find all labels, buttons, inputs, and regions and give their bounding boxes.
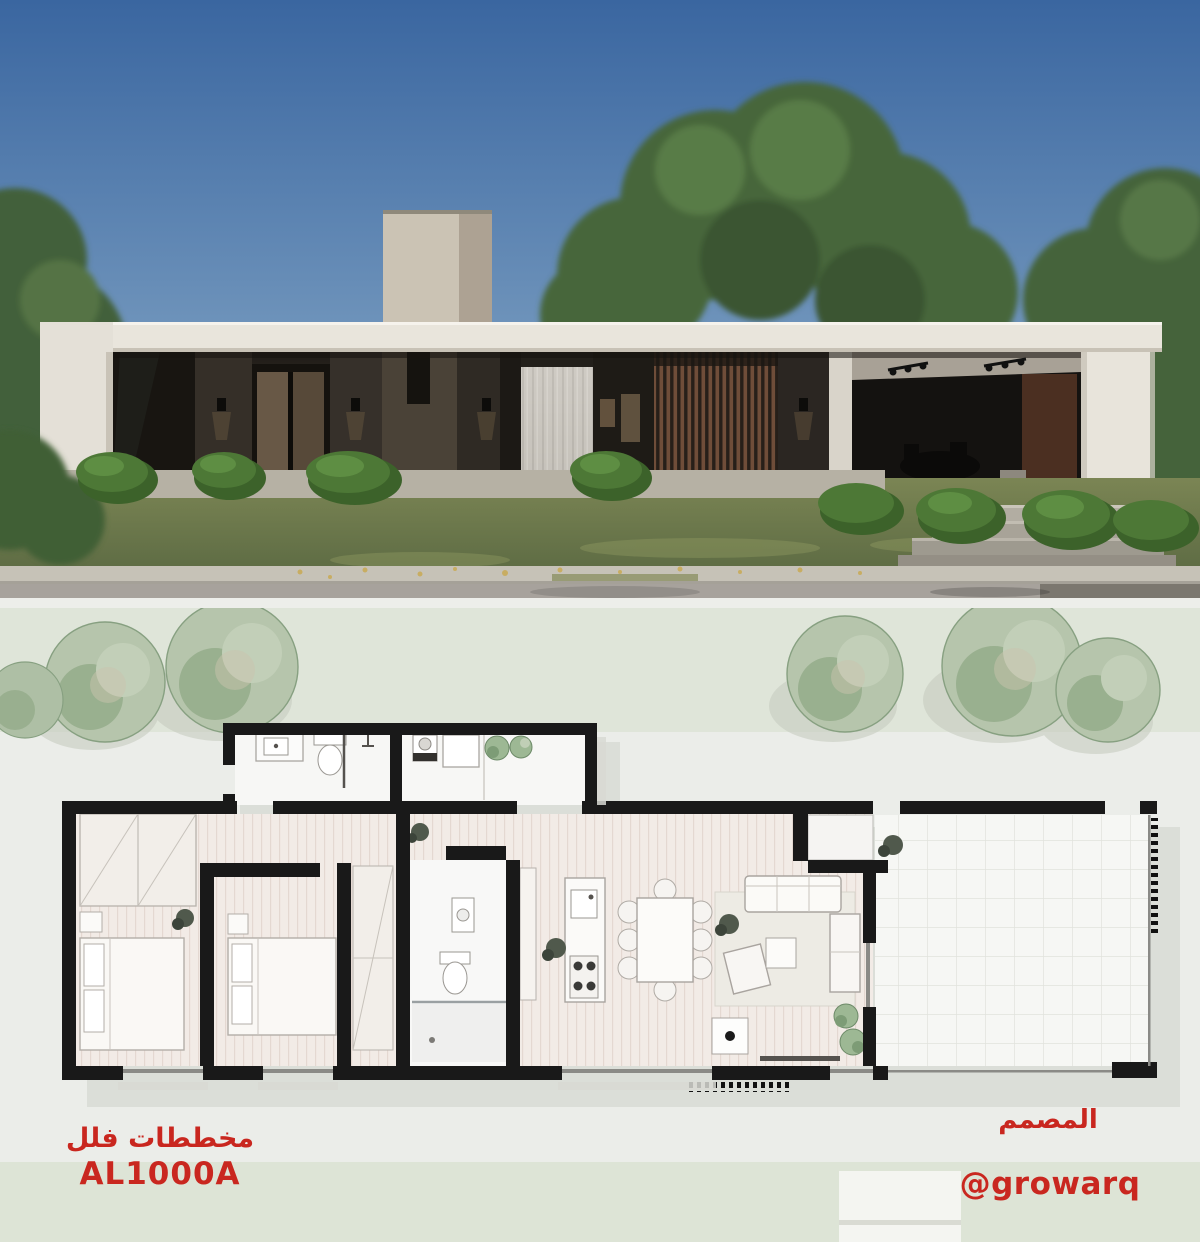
designer-handle: @growarq — [942, 1167, 1158, 1201]
pillow — [84, 944, 104, 986]
stove-unit — [712, 1018, 748, 1054]
nightstand — [80, 912, 102, 932]
kitchen-island — [565, 878, 605, 1002]
mahogany-wall — [1022, 374, 1077, 483]
site-tree — [787, 616, 903, 732]
wardrobe — [80, 814, 196, 906]
sink-icon — [452, 898, 474, 932]
site-tree — [1056, 638, 1160, 742]
kitchen-sink-icon — [571, 890, 597, 918]
sidewalk — [0, 566, 1200, 584]
site-tree — [45, 622, 165, 742]
bed-double — [80, 938, 184, 1050]
road — [0, 584, 1200, 600]
roof-fascia — [40, 322, 1162, 352]
wood-slat-screen — [654, 352, 778, 483]
small-window — [407, 352, 430, 404]
site-tree — [166, 608, 298, 733]
sofa — [745, 876, 841, 912]
designer-title-arabic: المصمم — [948, 1106, 1148, 1135]
chimney-tower — [383, 210, 492, 326]
bed-double — [228, 938, 336, 1035]
terrace-tiles — [875, 815, 1148, 1066]
media-shelf — [760, 1056, 840, 1061]
open-porch — [852, 352, 1081, 492]
pillow — [84, 990, 104, 1032]
shower-area — [412, 1002, 506, 1062]
divider-strip — [0, 598, 1200, 608]
exterior-render — [0, 0, 1200, 608]
gravel-bed — [40, 470, 885, 498]
plans-title-arabic: مخططات فلل — [58, 1124, 262, 1154]
cooktop-icon — [570, 956, 598, 998]
coffee-table — [766, 938, 796, 968]
porch-column — [829, 352, 852, 483]
pillow — [232, 986, 252, 1024]
nightstand — [228, 914, 248, 934]
pillow — [232, 944, 252, 982]
edge-hatch — [1149, 818, 1158, 936]
right-pier — [1081, 352, 1150, 485]
service-strip — [223, 723, 597, 814]
plan-code: AL1000A — [58, 1157, 262, 1191]
chaise — [830, 914, 860, 992]
closet — [353, 866, 393, 1050]
laundry-counter — [443, 735, 479, 767]
entry-nook — [808, 815, 873, 860]
washer-icon — [413, 735, 437, 761]
dining-table — [637, 898, 693, 982]
pantry-cabinet — [520, 868, 536, 1000]
architecture-post: مخططات فلل AL1000A المصمم @growarq — [0, 0, 1200, 1242]
